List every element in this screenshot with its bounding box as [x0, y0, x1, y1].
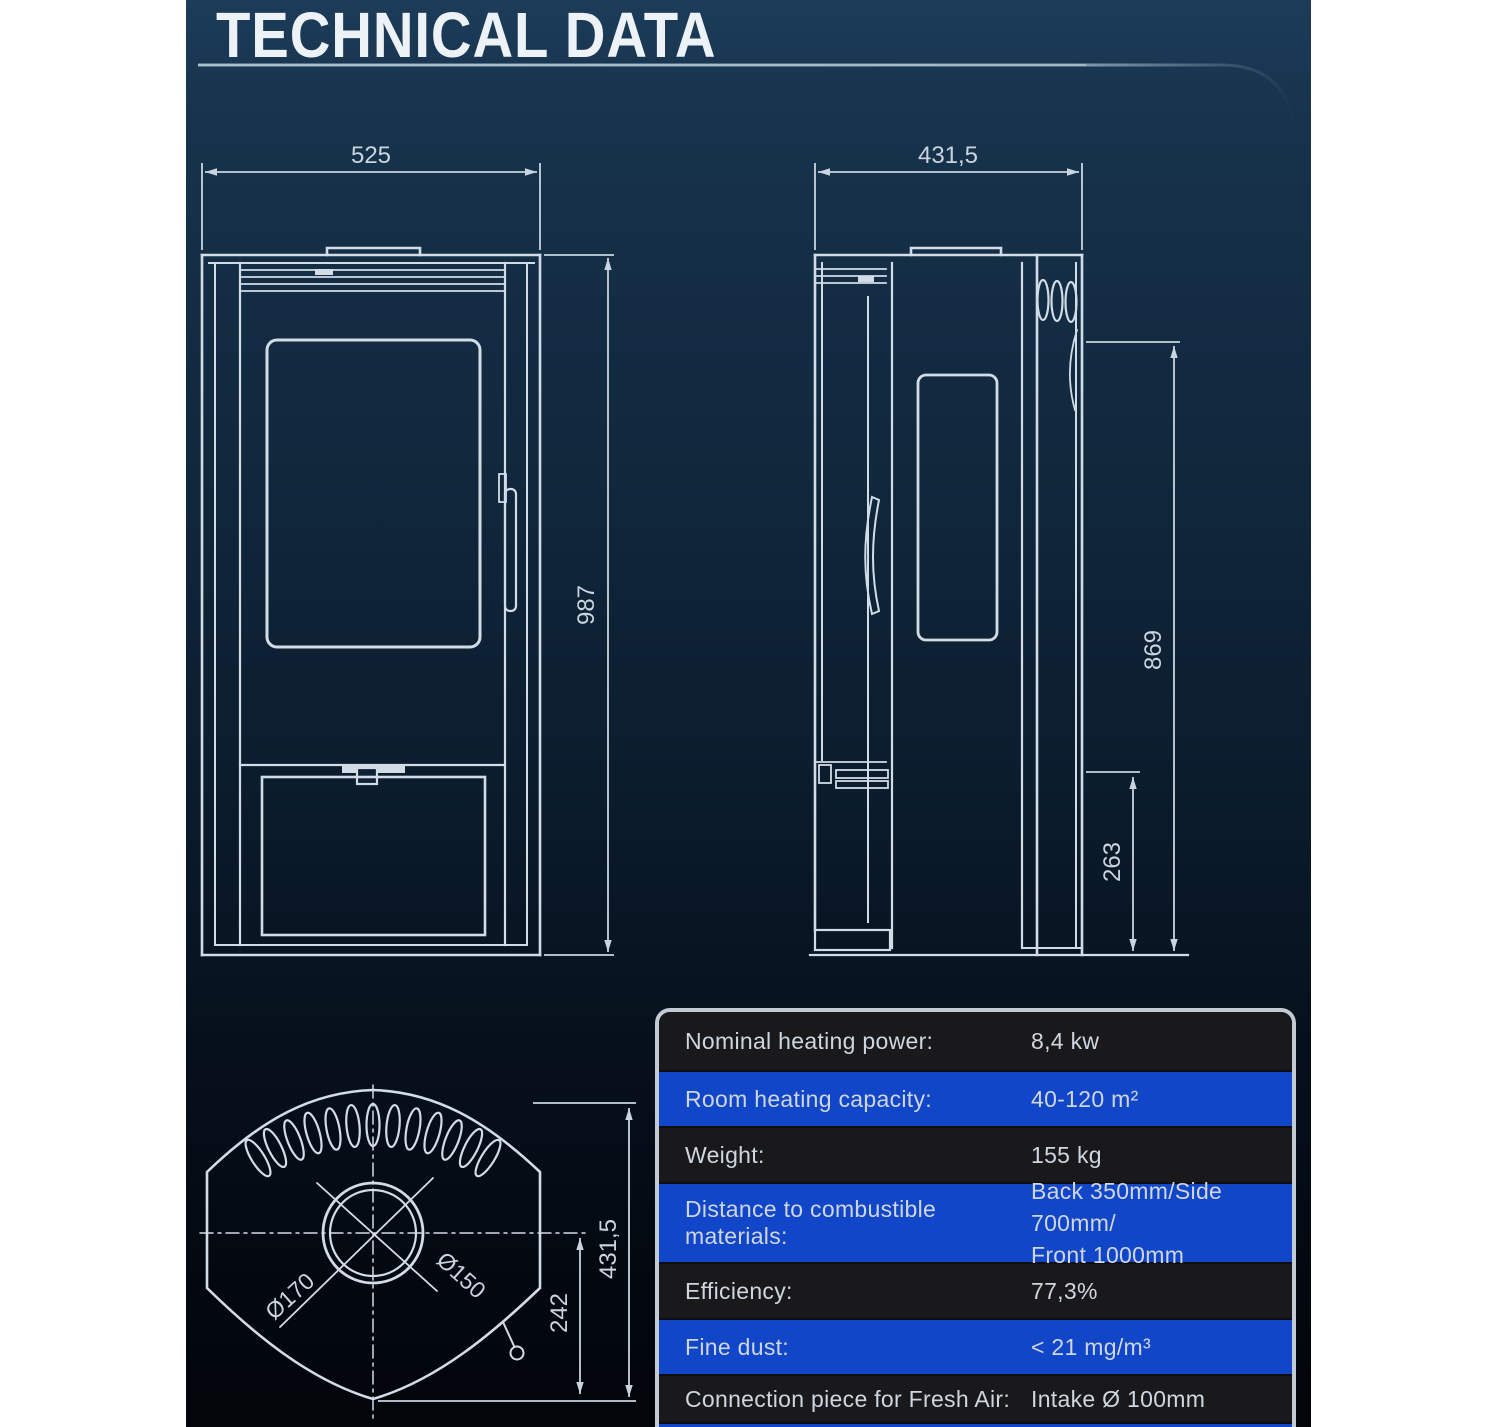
front-vent-strip [240, 270, 505, 291]
spec-label: Efficiency: [659, 1278, 1031, 1305]
spec-value: Back 350mm/Side 700mm/ Front 1000mm [1031, 1175, 1292, 1272]
top-offset-dim-label: 242 [546, 1293, 573, 1333]
spec-label: Room heating capacity: [659, 1086, 1031, 1113]
spec-row-fresh-air-connection: Connection piece for Fresh Air: Intake Ø… [659, 1376, 1292, 1422]
front-door-glass [267, 340, 480, 647]
right-white-margin [1311, 0, 1500, 1427]
front-height-dim-label: 987 [573, 585, 600, 625]
spec-row-efficiency: Efficiency: 77,3% [659, 1264, 1292, 1318]
side-rear-vent-ovals [1038, 280, 1077, 322]
front-air-slider [315, 269, 333, 275]
spec-value: 8,4 kw [1031, 1025, 1292, 1057]
spec-label: Distance to combustible materials: [659, 1196, 1031, 1250]
datasheet-canvas: TECHNICAL DATA TECHNICAL DATA [186, 0, 1311, 1427]
side-intake-height-dim-label: 263 [1099, 842, 1126, 882]
front-wood-compartment [262, 777, 485, 935]
front-door-handle [505, 489, 516, 611]
side-glass-window [918, 375, 997, 640]
side-height-dim-label: 869 [1140, 630, 1167, 670]
top-outer-diameter-label: Ø170 [260, 1268, 319, 1325]
spec-label: Connection piece for Fresh Air: [659, 1386, 1031, 1413]
spec-table: Nominal heating power: 8,4 kw Room heati… [655, 1008, 1296, 1427]
side-depth-dim-label: 431,5 [918, 142, 978, 169]
spec-row-fine-dust: Fine dust: < 21 mg/m³ [659, 1320, 1292, 1374]
spec-label: Nominal heating power: [659, 1028, 1031, 1055]
spec-value: 40-120 m² [1031, 1083, 1292, 1115]
spec-row-nominal-heating-power: Nominal heating power: 8,4 kw [659, 1012, 1292, 1070]
spec-value: 155 kg [1031, 1139, 1292, 1171]
front-width-dim-label: 525 [351, 142, 391, 169]
spec-row-distance-to-combustibles: Distance to combustible materials: Back … [659, 1184, 1292, 1262]
side-latch-detail [815, 762, 888, 788]
front-view-dimensions [202, 163, 614, 955]
spec-row-room-heating-capacity: Room heating capacity: 40-120 m² [659, 1072, 1292, 1126]
side-vent-strip [815, 269, 886, 283]
front-view-drawing [202, 248, 540, 955]
left-white-margin [0, 0, 186, 1427]
top-depth-dim-label: 431,5 [595, 1219, 622, 1279]
datasheet-page: { "page": { "title": "TECHNICAL DATA" },… [0, 0, 1500, 1427]
spec-value: 77,3% [1031, 1275, 1292, 1307]
spec-label: Weight: [659, 1142, 1031, 1169]
top-view-drawing [200, 1085, 586, 1421]
spec-value: Intake Ø 100mm [1031, 1383, 1292, 1415]
spec-value: < 21 mg/m³ [1031, 1331, 1292, 1363]
top-inner-diameter-label: Ø150 [432, 1247, 491, 1304]
side-view-drawing [810, 248, 1188, 955]
spec-label: Fine dust: [659, 1334, 1031, 1361]
top-damper-handle [503, 1322, 514, 1346]
